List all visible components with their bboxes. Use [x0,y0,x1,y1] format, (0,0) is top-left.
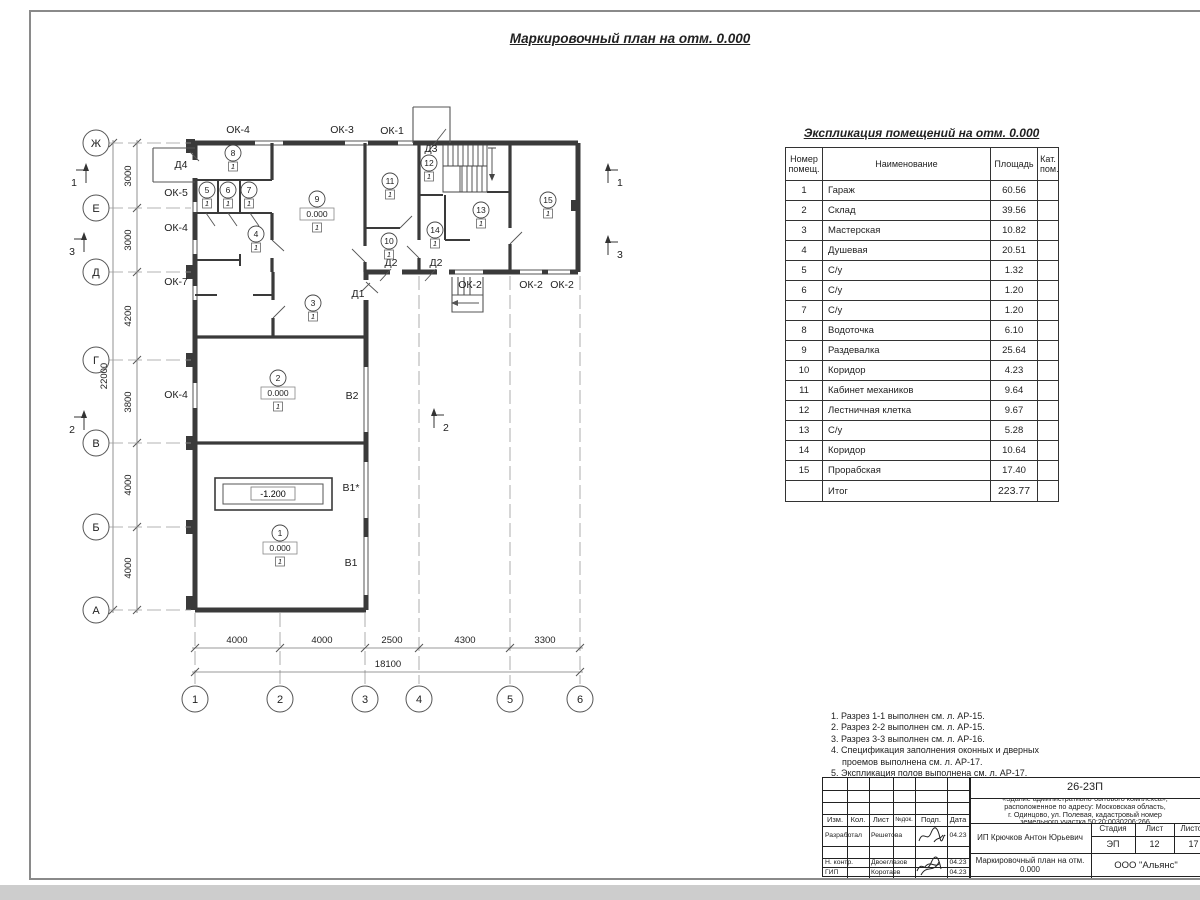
table-cell [1038,181,1059,201]
table-cell [1038,321,1059,341]
dimension-value: 4000 [311,635,332,646]
table-cell [1038,441,1059,461]
room-number: 6 [226,185,231,195]
room-number: 3 [311,298,316,308]
table-cell [1038,481,1059,502]
dimension-value: 4000 [123,557,134,578]
opening-label: ОК-4 [164,222,188,234]
opening-label: Д3 [425,143,438,155]
axis-label: Е [92,203,99,215]
table-cell: 223.77 [991,481,1038,502]
table-cell: Коридор [823,441,991,461]
staircase [443,145,496,192]
table-total-row: Итог223.77 [786,481,1059,502]
table-cell: 15 [786,461,823,481]
stamp-col-data: Дата [947,814,969,826]
section-label: 2 [69,424,75,436]
floor-type-mark: 1 [433,239,437,248]
table-cell: 9.64 [991,381,1038,401]
table-cell: 6 [786,281,823,301]
table-cell: С/у [823,281,991,301]
table-cell: 6.10 [991,321,1038,341]
table-cell: Прорабская [823,461,991,481]
table-cell: Душевая [823,241,991,261]
opening-label: ОК-7 [164,276,188,288]
table-cell [1038,461,1059,481]
table-cell: 7 [786,301,823,321]
explication-table: Номерпомещ. Наименование Площадь Кат.пом… [785,147,1059,502]
stamp-role-gip: ГИП [825,867,869,878]
table-row: 12Лестничная клетка9.67 [786,401,1059,421]
axis-label: Ж [91,138,101,150]
table-cell: 10 [786,361,823,381]
opening-label: ОК-1 [380,125,404,137]
stamp-col-podp: Подп. [915,814,947,826]
col-header-name: Наименование [823,148,991,181]
stamp-date-gip: 04.23 [947,867,969,878]
dimension-ticks [109,139,584,676]
stamp-sheets-label: Листов [1174,823,1200,836]
note-line: 1. Разрез 1-1 выполнен см. л. АР-15. [831,711,1121,722]
dimension-value: 4200 [123,305,134,326]
note-line: проемов выполнена см. л. АР-17. [831,757,1121,768]
table-cell: 12 [786,401,823,421]
room-number: 5 [205,185,210,195]
sheet-title: Маркировочный план на отм. 0.000 [430,31,830,46]
table-cell [1038,241,1059,261]
table-cell [1038,301,1059,321]
stamp-role-ncontrol: Н. контр. [825,858,869,867]
opening-label: Д4 [175,159,188,171]
level-value: 0.000 [306,209,328,219]
col-header-area: Площадь [991,148,1038,181]
dimension-value: 3000 [123,229,134,250]
axis-label: В [92,438,99,450]
floor-type-mark: 1 [205,199,209,208]
room-number: 13 [476,205,486,215]
table-cell: Мастерская [823,221,991,241]
note-line: 2. Разрез 2-2 выполнен см. л. АР-15. [831,722,1121,733]
table-cell: 5 [786,261,823,281]
floor-type-mark: 1 [231,162,235,171]
room-number: 15 [543,195,553,205]
stamp-name-gip: Коротаев [871,867,914,878]
opening-label: Д1 [352,288,365,300]
stamp-organization: ООО "Альянс" [1091,853,1200,878]
room-number: 4 [254,229,259,239]
col-header-number: Номерпомещ. [786,148,823,181]
table-cell: 1.20 [991,281,1038,301]
dimension-value: 3800 [123,391,134,412]
table-cell: 25.64 [991,341,1038,361]
table-cell: 39.56 [991,201,1038,221]
table-cell: Склад [823,201,991,221]
opening-label: ОК-5 [164,187,188,199]
table-row: 1Гараж60.56 [786,181,1059,201]
table-row: 9Раздевалка25.64 [786,341,1059,361]
note-line: 4. Спецификация заполнения оконных и две… [831,745,1121,756]
table-cell: Кабинет механиков [823,381,991,401]
table-cell [1038,201,1059,221]
stamp-sheets-value: 17 [1174,836,1200,853]
axis-label: 5 [507,694,513,706]
table-cell: 17.40 [991,461,1038,481]
stamp-date-developer: 04.23 [947,826,969,846]
opening-label: В1* [343,482,360,494]
stamp-name-developer: Решетова [871,826,914,846]
floor-type-mark: 1 [311,312,315,321]
table-cell: Коридор [823,361,991,381]
partition-walls [195,180,510,295]
table-cell [1038,381,1059,401]
table-cell [1038,221,1059,241]
opening-label: ОК-4 [164,389,188,401]
dimension-value: 4000 [123,474,134,495]
stamp-stage-label: Стадия [1091,823,1135,836]
axis-label: 3 [362,694,368,706]
room-number: 8 [231,148,236,158]
window-openings [193,141,570,595]
table-cell: 5.28 [991,421,1038,441]
stamp-date-ncontrol: 04.23 [947,858,969,867]
axis-label: А [92,605,100,617]
table-row: 5С/у1.32 [786,261,1059,281]
opening-label: Д2 [430,257,443,269]
stamp-col-ndoc: №док. [893,814,915,826]
stamp-col-kol: Кол. [847,814,869,826]
table-cell: Итог [823,481,991,502]
table-cell: 11 [786,381,823,401]
stamp-sheet-value: 12 [1135,836,1174,853]
section-label: 1 [71,177,77,189]
floor-type-mark: 1 [427,172,431,181]
inspection-pit: -1.200 [215,478,332,510]
floor-type-mark: 1 [254,243,258,252]
table-row: 15Прорабская17.40 [786,461,1059,481]
table-row: 10Коридор4.23 [786,361,1059,381]
table-cell: С/у [823,261,991,281]
level-value: 0.000 [269,543,291,553]
dimension-value: 3300 [534,635,555,646]
floor-type-mark: 1 [226,199,230,208]
table-cell: С/у [823,301,991,321]
room-number: 10 [384,236,394,246]
table-cell: 2 [786,201,823,221]
stamp-doc-title: Маркировочный план на отм. 0.000 [969,853,1091,878]
floor-type-mark: 1 [388,190,392,199]
pit-level-label: -1.200 [260,489,286,499]
table-cell: 4 [786,241,823,261]
table-cell [1038,421,1059,441]
section-label: 1 [617,177,623,189]
table-cell: 10.64 [991,441,1038,461]
table-row: 13С/у5.28 [786,421,1059,441]
axis-label: Б [92,522,99,534]
table-cell: 20.51 [991,241,1038,261]
section-label: 2 [443,422,449,434]
table-cell: 14 [786,441,823,461]
dimension-value: 4300 [454,635,475,646]
dimension-lines [113,140,583,672]
stamp-stage-value: ЭП [1091,836,1135,853]
signature-developer [916,826,946,846]
table-cell: 13 [786,421,823,441]
axis-label: 6 [577,694,583,706]
table-cell: Лестничная клетка [823,401,991,421]
floor-type-mark: 1 [276,402,280,411]
table-row: 2Склад39.56 [786,201,1059,221]
room-number: 7 [247,185,252,195]
opening-label: В2 [346,390,359,402]
floor-type-mark: 1 [546,209,550,218]
opening-label: ОК-2 [458,279,482,291]
table-cell: 4.23 [991,361,1038,381]
table-cell [1038,401,1059,421]
table-cell: Гараж [823,181,991,201]
table-row: 6С/у1.20 [786,281,1059,301]
signature-gip [913,855,947,878]
section-label: 3 [69,246,75,258]
room-number: 1 [278,528,283,538]
table-cell: 9 [786,341,823,361]
stamp-client: ИП Крючков Антон Юрьевич [969,823,1091,853]
table-cell: 3 [786,221,823,241]
table-row: 8Водоточка6.10 [786,321,1059,341]
room-number: 11 [386,176,395,186]
opening-label: В1 [345,557,358,569]
opening-label: ОК-4 [226,124,250,136]
wall-pilasters [186,139,578,610]
table-cell: 8 [786,321,823,341]
desktop-edge-strip [0,885,1200,900]
stamp-name-ncontrol: Двоеглазов [871,858,914,867]
drawing-sheet: -1.200 ЖЕДГВБА12345630003000420038004000… [0,0,1200,900]
room-number: 2 [276,373,281,383]
table-row: 14Коридор10.64 [786,441,1059,461]
table-cell [1038,341,1059,361]
floor-type-mark: 1 [479,219,483,228]
stamp-col-list: Лист [869,814,893,826]
stamp-sheet-label: Лист [1135,823,1174,836]
table-cell: Водоточка [823,321,991,341]
opening-label: ОК-2 [519,279,543,291]
table-cell [1038,261,1059,281]
section-label: 3 [617,249,623,261]
opening-label: ОК-2 [550,279,574,291]
floor-type-mark: 1 [278,557,282,566]
table-cell: С/у [823,421,991,441]
floor-type-mark: 1 [315,223,319,232]
floor-type-mark: 1 [387,250,391,259]
room-explication: Экспликация помещений на отм. 0.000 Номе… [785,126,1058,502]
dimension-total: 18100 [375,659,401,670]
dimension-value: 3000 [123,165,134,186]
stamp-role-developer: Разработал [825,826,869,846]
dimension-total: 22000 [99,363,110,389]
table-cell: 1 [786,181,823,201]
floor-type-mark: 1 [247,199,251,208]
table-cell [1038,361,1059,381]
table-row: 4Душевая20.51 [786,241,1059,261]
table-cell: 1.20 [991,301,1038,321]
axis-label: 4 [416,694,422,706]
sheet-notes: 1. Разрез 1-1 выполнен см. л. АР-15.2. Р… [831,711,1121,779]
table-cell: 9.67 [991,401,1038,421]
explication-title: Экспликация помещений на отм. 0.000 [785,126,1058,140]
table-cell: Раздевалка [823,341,991,361]
stamp-col-izm: Изм. [823,814,847,826]
axis-label: 1 [192,694,198,706]
note-line: 3. Разрез 3-3 выполнен см. л. АР-16. [831,734,1121,745]
room-number: 9 [315,194,320,204]
axis-label: Д [92,267,100,279]
table-cell [1038,281,1059,301]
dimension-value: 4000 [226,635,247,646]
stamp-project-code: 26-23П [969,778,1200,798]
axis-label: 2 [277,694,283,706]
level-value: 0.000 [267,388,289,398]
table-row: 7С/у1.20 [786,301,1059,321]
table-cell: 1.32 [991,261,1038,281]
room-number: 12 [424,158,434,168]
table-row: 11Кабинет механиков9.64 [786,381,1059,401]
dimension-value: 2500 [381,635,402,646]
table-cell: 60.56 [991,181,1038,201]
table-row: 3Мастерская10.82 [786,221,1059,241]
opening-label: ОК-3 [330,124,354,136]
stamp-object-description: «Здание административно-бытового комплек… [973,798,1197,823]
table-cell [786,481,823,502]
title-block: Изм. Кол. Лист №док. Подп. Дата Разработ… [822,777,1200,877]
room-number: 14 [430,225,440,235]
table-cell: 10.82 [991,221,1038,241]
col-header-category: Кат.пом. [1038,148,1059,181]
